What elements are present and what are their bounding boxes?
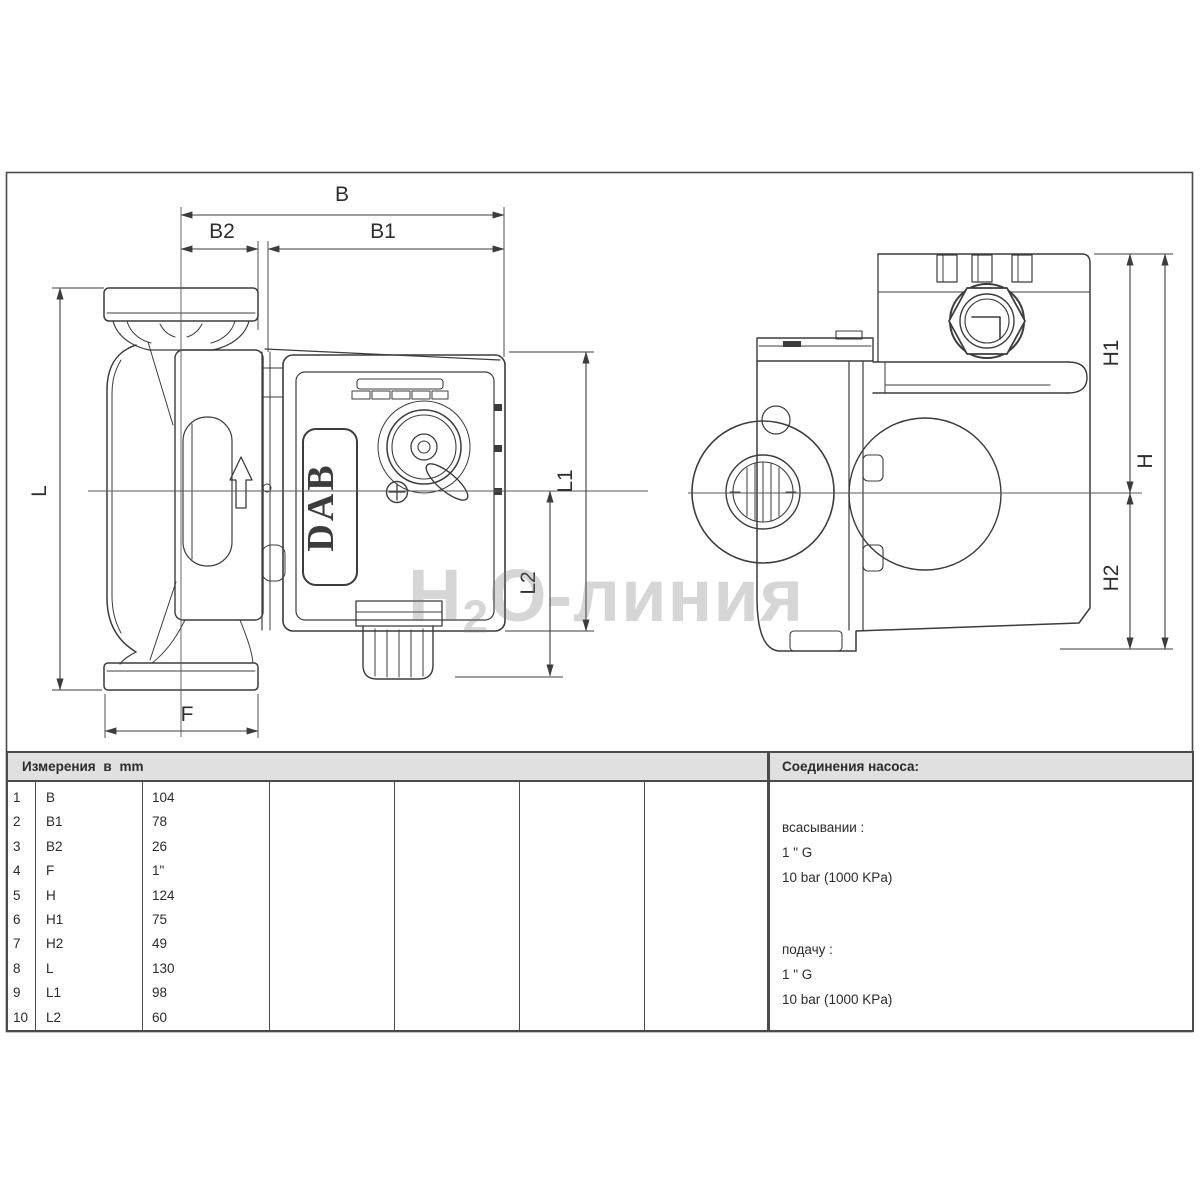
watermark: H2O-линия bbox=[408, 553, 804, 643]
row-num: 8 bbox=[13, 957, 37, 981]
row-num: 10 bbox=[13, 1006, 37, 1030]
dim-letter: H2 bbox=[46, 932, 136, 956]
dimension-labels: B B2 B1 L L1 L2 F H1 H H2 bbox=[28, 183, 1157, 726]
watermark-suffix: O-линия bbox=[489, 554, 804, 637]
dim-letter: B1 bbox=[46, 810, 136, 834]
dim-letter: L2 bbox=[46, 1006, 136, 1030]
dab-logo-text: DAB bbox=[300, 462, 342, 551]
dim-label-L: L bbox=[28, 485, 51, 497]
dim-label-H1: H1 bbox=[1100, 340, 1123, 367]
suction-pressure: 10 bar (1000 KPa) bbox=[782, 870, 892, 885]
dim-label-B2: B2 bbox=[209, 220, 235, 243]
dim-value: 78 bbox=[152, 810, 262, 834]
dim-label-H2: H2 bbox=[1100, 565, 1123, 592]
row-num: 7 bbox=[13, 932, 37, 956]
delivery-size: 1 " G bbox=[782, 967, 812, 982]
dim-letter: L1 bbox=[46, 981, 136, 1005]
suction-label: всасывании : bbox=[782, 820, 864, 835]
dim-value: 104 bbox=[152, 786, 262, 810]
dim-value: 26 bbox=[152, 835, 262, 859]
dim-label-B1: B1 bbox=[370, 220, 396, 243]
dim-value: 60 bbox=[152, 1006, 262, 1030]
row-num: 6 bbox=[13, 908, 37, 932]
column-row-numbers: 1 2 3 4 5 6 7 8 9 10 bbox=[13, 786, 37, 1030]
table-grid-line bbox=[269, 782, 270, 1030]
table-section-divider bbox=[767, 753, 770, 1030]
column-dimension-letters: B B1 B2 F H H1 H2 L L1 L2 bbox=[46, 786, 136, 1030]
table-grid-line bbox=[142, 782, 143, 1030]
dim-label-H: H bbox=[1134, 453, 1157, 468]
table-grid-line bbox=[644, 782, 645, 1030]
dim-label-B: B bbox=[335, 183, 349, 206]
delivery-pressure: 10 bar (1000 KPa) bbox=[782, 992, 892, 1007]
dim-letter: H bbox=[46, 884, 136, 908]
dim-value: 130 bbox=[152, 957, 262, 981]
row-num: 4 bbox=[13, 859, 37, 883]
row-num: 9 bbox=[13, 981, 37, 1005]
pump-dimensional-drawing-sheet: DAB bbox=[0, 0, 1200, 1200]
dim-letter: L bbox=[46, 957, 136, 981]
watermark-subscript: 2 bbox=[462, 590, 489, 642]
row-num: 3 bbox=[13, 835, 37, 859]
dim-letter: H1 bbox=[46, 908, 136, 932]
dim-value: 1" bbox=[152, 859, 262, 883]
dimension-lines bbox=[52, 207, 1173, 738]
measurements-header: Измерения в mm bbox=[22, 759, 143, 774]
connections-header: Соединения насоса: bbox=[782, 759, 919, 774]
column-dimension-values: 104 78 26 1" 124 75 49 130 98 60 bbox=[152, 786, 262, 1030]
dim-label-L1: L1 bbox=[554, 469, 577, 492]
row-num: 2 bbox=[13, 810, 37, 834]
dim-value: 98 bbox=[152, 981, 262, 1005]
dim-letter: B2 bbox=[46, 835, 136, 859]
watermark-prefix: H bbox=[408, 554, 462, 637]
row-num: 1 bbox=[13, 786, 37, 810]
dim-value: 49 bbox=[152, 932, 262, 956]
delivery-label: подачу : bbox=[782, 942, 833, 957]
dim-letter: B bbox=[46, 786, 136, 810]
table-grid-line bbox=[394, 782, 395, 1030]
dim-value: 124 bbox=[152, 884, 262, 908]
suction-size: 1 " G bbox=[782, 845, 812, 860]
table-grid-line bbox=[519, 782, 520, 1030]
table-header-row: Измерения в mm Соединения насоса: bbox=[8, 753, 1192, 782]
dim-value: 75 bbox=[152, 908, 262, 932]
specification-table: Измерения в mm Соединения насоса: 1 2 3 … bbox=[6, 751, 1194, 1032]
knob-pointer bbox=[421, 458, 472, 505]
centerlines bbox=[88, 207, 1142, 737]
row-num: 5 bbox=[13, 884, 37, 908]
dim-letter: F bbox=[46, 859, 136, 883]
dim-label-F: F bbox=[181, 703, 194, 726]
